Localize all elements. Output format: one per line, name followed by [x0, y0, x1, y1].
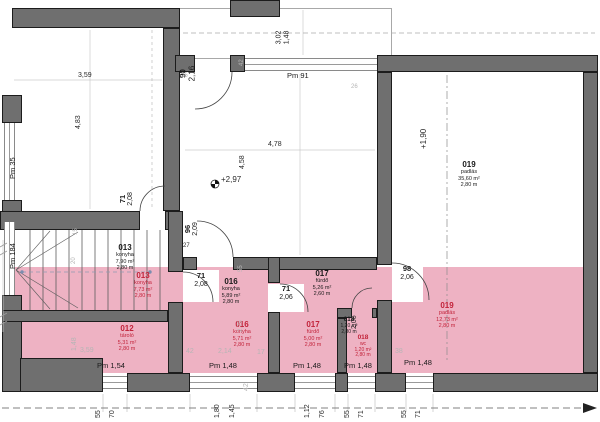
room-height: 2,80 m: [347, 353, 379, 359]
dim-room-width: 3,59: [78, 72, 92, 79]
door-height: 2,08: [184, 281, 218, 289]
level-marker-symbol: [211, 180, 219, 188]
door-arc-d6: [352, 288, 372, 308]
section-line: [2, 403, 597, 413]
room-height: 2,60 m: [296, 291, 348, 297]
dim-value: 3,02: [276, 24, 284, 50]
dim-under: 3,59: [80, 347, 94, 354]
door-width: 71: [184, 272, 218, 281]
parapet-label-pm148: Pm 1,48: [404, 358, 432, 367]
parapet-label-pm148: Pm 1,48: [293, 361, 321, 370]
dim-jamb: 25: [181, 73, 188, 79]
level-label-297: +2,97: [221, 175, 241, 184]
room-number: 017: [288, 320, 338, 329]
dim-under: 38: [395, 348, 403, 355]
dim-chain: 55: [401, 410, 408, 418]
room-height: 2,80 m: [103, 346, 151, 352]
room-number: 012: [103, 324, 151, 333]
room-label-018-red: 018 wc 1,20 m² 2,80 m: [347, 334, 379, 359]
room-height: 2,80 m: [207, 299, 255, 305]
parapet-label-pm91: Pm 91: [287, 71, 309, 80]
parapet-label-pm184: Pm 184: [8, 243, 17, 269]
dim-room-depth: 4,83: [75, 115, 82, 129]
door-width: 71: [119, 186, 127, 212]
parapet-label-pm148: Pm 1,48: [209, 361, 237, 370]
section-arrow: [583, 403, 597, 413]
door-label-d4: 71 2,08: [184, 272, 218, 289]
dim-chain: 1,12: [304, 404, 311, 418]
room-label-018-black: 018 1,20 m² 2,80 m: [334, 316, 364, 335]
room-label-012-red: 012 tároló 5,31 m² 2,80 m: [103, 324, 151, 353]
room-height: 2,80 m: [443, 182, 495, 188]
door-arc-d3: [197, 221, 233, 257]
dim-under: 2,75: [238, 320, 244, 332]
dim-chain: 71: [415, 410, 422, 418]
level-label-190: +1,90: [419, 129, 428, 149]
dim-room-width: 4,78: [268, 141, 282, 148]
room-label-019-black: 019 padlás 35,60 m² 2,80 m: [443, 160, 495, 189]
door-label-d3: 96 2,09: [184, 214, 200, 244]
dim-jamb: 42: [239, 59, 245, 66]
dim-room-depth: 4,58: [239, 155, 246, 169]
room-number: 019: [443, 160, 495, 169]
door-label-d5: 71 2,06: [269, 285, 303, 302]
dim-chain: 70: [109, 410, 116, 418]
dim-chain: 55: [95, 410, 102, 418]
dim-under: 2,14: [218, 348, 232, 355]
door-label-d1: 71 2,08: [119, 186, 135, 212]
dim-stair: 20: [71, 257, 77, 264]
room-number: 013: [98, 243, 152, 252]
plan-linework: [0, 0, 600, 422]
dim-chain: 55: [344, 410, 351, 418]
dim-jamb: 27: [183, 243, 190, 249]
dim-chain: 1,45: [229, 404, 236, 418]
door-height: 2,06: [391, 274, 423, 282]
dim-chain: 1,80: [214, 404, 221, 418]
dim-under: 42: [186, 348, 194, 355]
room-label-017-black: 017 fürdő 5,26 m² 2,60 m: [296, 269, 348, 298]
floor-plan-canvas: 013 konyha 7,90 m² 2,80 m 013 konyha 7,7…: [0, 0, 600, 422]
room-number: 019: [421, 301, 473, 310]
room-number: 017: [296, 269, 348, 278]
dim-under: 42: [243, 383, 250, 391]
room-label-017-red: 017 fürdő 5,00 m² 2,80 m: [288, 320, 338, 349]
room-height: 2,80 m: [120, 293, 166, 299]
parapet-label-pm148: Pm 1,48: [344, 361, 372, 370]
room-label-019-red: 019 padlás 12,73 m² 2,80 m: [421, 301, 473, 330]
door-arc-d1: [140, 186, 165, 211]
dim-chain: 71: [358, 410, 365, 418]
dim-stair: 15: [73, 228, 79, 235]
door-label-d6: 2,06: [351, 315, 358, 329]
door-width: 96: [184, 214, 192, 244]
door-height: 2,06: [269, 294, 303, 302]
dim-chain: 76: [319, 410, 326, 418]
parapet-label-pm35: Pm 35: [8, 157, 17, 179]
dim-terrace: 3,02 1,48: [276, 24, 291, 50]
dim-value: 1,48: [283, 24, 291, 50]
room-label-013-black: 013 konyha 7,90 m² 2,80 m: [98, 243, 152, 272]
room-label-013-red: 013 konyha 7,73 m² 2,80 m: [120, 271, 166, 300]
left-dim-ticks: [0, 243, 7, 325]
dim-jamb: 26: [351, 84, 358, 90]
door-width: 71: [269, 285, 303, 294]
door-label-d7: 98 2,06: [391, 265, 423, 282]
walk-line-dot: [20, 270, 23, 273]
door-width: 98: [391, 265, 423, 274]
room-height: 2,80 m: [288, 342, 338, 348]
dim-under: 17: [257, 349, 265, 356]
room-height: 2,80 m: [421, 323, 473, 329]
dim-under: 1,48: [71, 337, 78, 351]
door-arc-d2: [195, 72, 232, 109]
door-height: 2,16: [188, 58, 197, 90]
parapet-label-pm154: Pm 1,54: [97, 361, 125, 370]
door-height: 2,09: [192, 214, 200, 244]
door-height: 2,08: [127, 186, 135, 212]
dim-jamb: 55: [238, 265, 244, 272]
room-number: 013: [120, 271, 166, 280]
